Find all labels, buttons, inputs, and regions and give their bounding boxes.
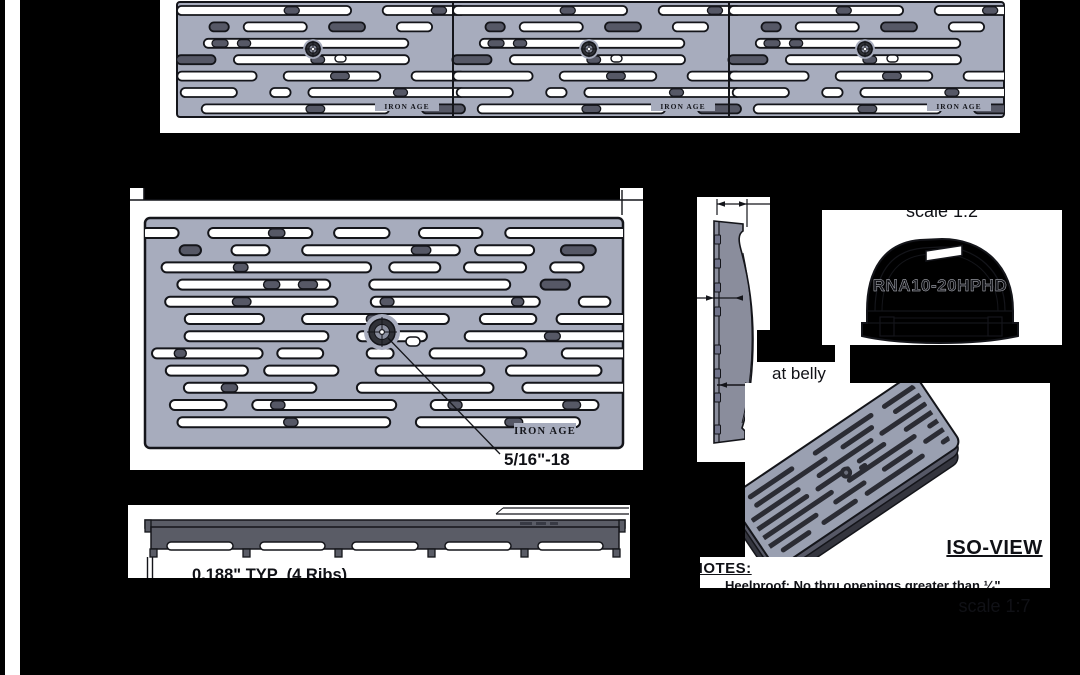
side-elevation-panel: 0.188" TYP (4 Ribs) bbox=[128, 505, 630, 578]
drawing-sheet: IRON AGE IRON AGE IRON AGE IRON AGE 5/16… bbox=[0, 0, 1080, 675]
brand-embossed-text: IRON AGE bbox=[514, 426, 576, 437]
page-edge-strip bbox=[5, 0, 20, 675]
brand-embossed-text: IRON AGE bbox=[936, 102, 981, 111]
brand-embossed-text: IRON AGE bbox=[660, 102, 705, 111]
plan-view-panel: IRON AGE 5/16"-18 bbox=[130, 188, 643, 470]
plan-grate-drawing: IRON AGE bbox=[130, 188, 643, 470]
top-assembly-view: IRON AGE IRON AGE IRON AGE bbox=[160, 0, 1020, 133]
notes-heading: NOTES: bbox=[700, 560, 752, 577]
brand-embossed-text: IRON AGE bbox=[384, 102, 429, 111]
mask-block bbox=[144, 188, 620, 200]
thread-callout: 5/16"-18 bbox=[504, 450, 570, 470]
grate-band-drawing: IRON AGE IRON AGE IRON AGE bbox=[160, 0, 1020, 133]
note-heelproof: Heelproof: No thru openings greater than… bbox=[725, 578, 1001, 588]
belly-dimension-label: at belly bbox=[772, 364, 826, 384]
iso-view-scale: scale 1:7 bbox=[937, 596, 1052, 617]
part-number-embossed: RNA10-20HPHD bbox=[873, 276, 1007, 295]
rib-callout: 0.188" TYP (4 Ribs) bbox=[192, 566, 347, 578]
notes-strip: NOTES: Heelproof: No thru openings great… bbox=[700, 557, 1050, 588]
cast-end-drawing: RNA10-20HPHD bbox=[822, 210, 1062, 345]
detail-view-panel: scale 1:2 RNA10-20HPHD bbox=[822, 210, 1062, 345]
